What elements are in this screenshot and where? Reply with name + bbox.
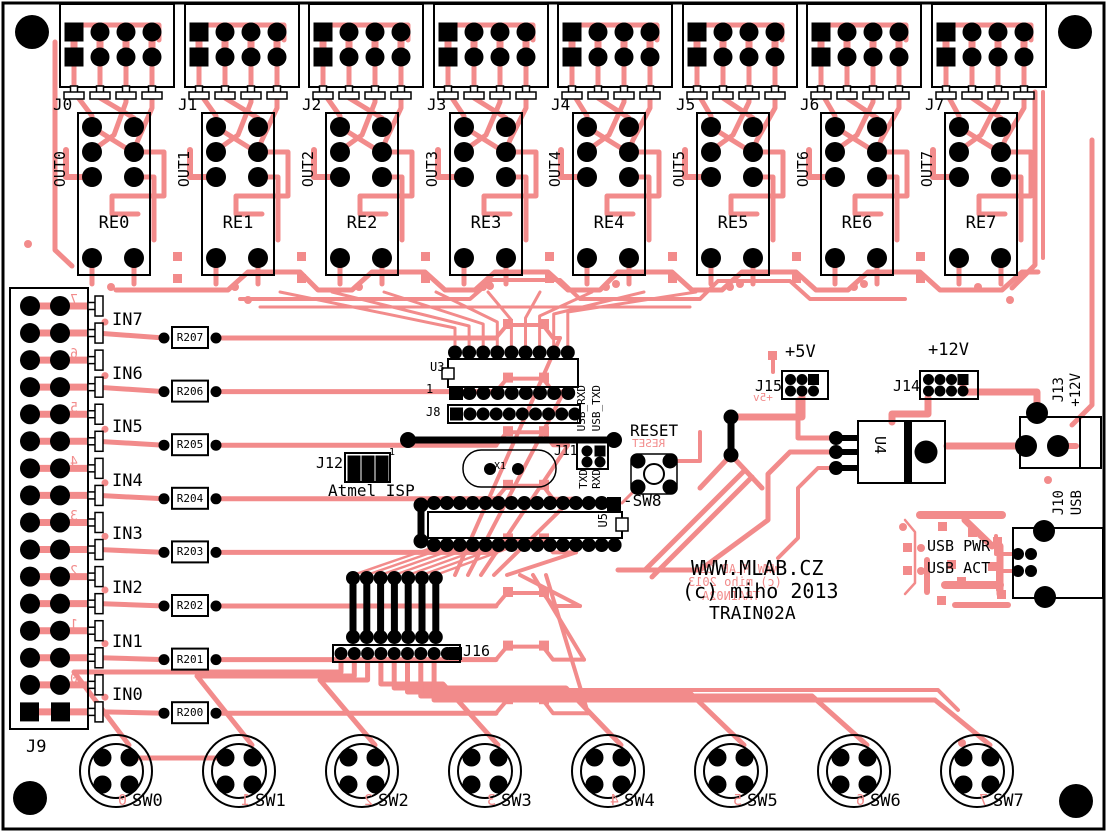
via (899, 523, 907, 531)
j11-label: J11 (554, 445, 577, 458)
out-label: OUT2 (301, 151, 316, 187)
switch-mirror-digit: 4 (610, 793, 619, 808)
via (244, 296, 252, 304)
switch-label: SW3 (501, 793, 532, 810)
switch-mirror-digit: 3 (487, 793, 496, 808)
j14-label: J14 (893, 379, 920, 394)
smd-pad (993, 537, 1002, 546)
switch-label: SW0 (132, 793, 163, 810)
txd-label: TXD (578, 469, 589, 489)
out-label: OUT6 (796, 151, 811, 187)
j9-mirror-digit: 6 (70, 348, 78, 361)
plus12v-label: +12V (928, 342, 969, 359)
via (860, 280, 868, 288)
pcb-artwork (0, 0, 1107, 832)
j9-mirror-digit: 4 (70, 456, 78, 469)
j9-mirror-digit: 5 (70, 402, 78, 415)
rxd-label: RXD (591, 469, 602, 489)
via (24, 240, 32, 248)
switch-label: SW2 (378, 793, 409, 810)
resistor-label: R207 (172, 332, 208, 343)
j13-voltage-label: +12V (1069, 373, 1083, 407)
resistor-label: R200 (172, 707, 208, 718)
relay-label: RE3 (450, 215, 522, 232)
relay-label: RE1 (202, 215, 274, 232)
smd-pad (997, 590, 1006, 599)
input-label: IN3 (112, 526, 143, 543)
resistor-label: R201 (172, 654, 208, 665)
plus5v-label: +5V (785, 344, 816, 361)
j9-label: J9 (26, 739, 46, 756)
sw8-label: -SW8 (623, 493, 662, 509)
switch-label: SW6 (870, 793, 901, 810)
u5-outline (428, 512, 622, 538)
relay-label: RE7 (945, 215, 1017, 232)
j10-outline (1013, 528, 1103, 598)
out-label: OUT4 (548, 151, 563, 187)
usb-pwr-label: USB PWR (927, 539, 990, 554)
relay-label: RE0 (78, 215, 150, 232)
smd-pad (968, 528, 977, 537)
input-label: IN6 (112, 366, 143, 383)
via (1044, 476, 1052, 484)
atmel-isp-label: Atmel ISP (328, 483, 415, 499)
mounting-hole (1058, 15, 1092, 49)
connector-label: J3 (427, 97, 446, 113)
switch-mirror-digit: 7 (979, 793, 988, 808)
resistor-label: R203 (172, 546, 208, 557)
u5-label: U5 (597, 513, 609, 527)
switch-mirror-digit: 5 (733, 793, 742, 808)
x1-label: X1 (494, 462, 506, 472)
j9-mirror-digit: 1 (70, 619, 78, 632)
relay-label: RE4 (573, 215, 645, 232)
switch-mirror-digit: 6 (856, 793, 865, 808)
j13-label: J13 (1052, 377, 1066, 402)
via (612, 280, 620, 288)
pcb-board: U3 1 J8 USB_RXD USB_TXD J11 TXD RXD RESE… (0, 0, 1107, 832)
smd-pad (938, 522, 947, 531)
connector-label: J0 (53, 97, 72, 113)
resistor-label: R205 (172, 439, 208, 450)
u3-label: U3 (430, 361, 444, 373)
usb-rxd-label: USB_RXD (576, 385, 587, 431)
usb-act-label: USB ACT (927, 561, 990, 576)
input-label: IN2 (112, 580, 143, 597)
smd-pad (768, 351, 777, 360)
mounting-hole (1059, 784, 1093, 818)
smd-pad (957, 577, 966, 586)
switch-mirror-digit: 0 (118, 793, 127, 808)
input-label: IN0 (112, 687, 143, 704)
connector-label: J6 (800, 97, 819, 113)
switch-label: SW7 (993, 793, 1024, 810)
smd-pad (903, 566, 912, 575)
copyright-line2: (c) miho 2013 (682, 581, 839, 601)
connector-label: J4 (551, 97, 570, 113)
via (1006, 296, 1014, 304)
resistor-label: R204 (172, 493, 208, 504)
mounting-hole (15, 15, 49, 49)
out-label: OUT0 (53, 151, 68, 187)
connector-label: J1 (178, 97, 197, 113)
switch-label: SW5 (747, 793, 778, 810)
smd-pad (937, 596, 946, 605)
relay-label: RE5 (697, 215, 769, 232)
via (736, 280, 744, 288)
j12-pin1-label: 1 (389, 448, 395, 458)
connector-label: J7 (925, 97, 944, 113)
u3-pin1-label: 1 (426, 383, 433, 395)
resistor-label: R202 (172, 600, 208, 611)
out-label: OUT1 (177, 151, 192, 187)
resistor-label: R206 (172, 386, 208, 397)
via (917, 544, 925, 552)
j10-type-label: USB (1070, 490, 1084, 515)
mounting-hole (13, 781, 47, 815)
input-label: IN4 (112, 473, 143, 490)
out-label: OUT7 (920, 151, 935, 187)
plus5v-mirror-label: +5v (753, 392, 773, 403)
input-label: IN5 (112, 419, 143, 436)
j9-mirror-digit: 3 (70, 510, 78, 523)
j12-label: J12 (316, 456, 343, 471)
copyright-line3: TRAIN02A (709, 605, 796, 623)
j9-mirror-digit: 2 (70, 565, 78, 578)
copyright-line1: WWW.MLAB.CZ (691, 558, 823, 578)
j8-label: J8 (426, 406, 440, 418)
reset-label: RESET (630, 423, 678, 439)
out-label: OUT5 (672, 151, 687, 187)
j10-label: J10 (1052, 490, 1066, 515)
out-label: OUT3 (425, 151, 440, 187)
switch-mirror-digit: 2 (364, 793, 373, 808)
j16-label: J16 (463, 644, 490, 659)
usb-txd-label: USB_TXD (591, 385, 602, 431)
switch-mirror-digit: 1 (241, 793, 250, 808)
switch-label: SW4 (624, 793, 655, 810)
switch-label: SW1 (255, 793, 286, 810)
input-label: IN7 (112, 312, 143, 329)
relay-label: RE2 (326, 215, 398, 232)
connector-label: J2 (302, 97, 321, 113)
via (917, 567, 925, 575)
smd-pad (903, 543, 912, 552)
relay-label: RE6 (821, 215, 893, 232)
u4-label: U4 (872, 436, 887, 454)
input-label: IN1 (112, 634, 143, 651)
j9-mirror-digit: 0 (70, 673, 78, 686)
j9-mirror-digit: 7 (70, 294, 78, 307)
via (486, 282, 494, 290)
connector-label: J5 (676, 97, 695, 113)
